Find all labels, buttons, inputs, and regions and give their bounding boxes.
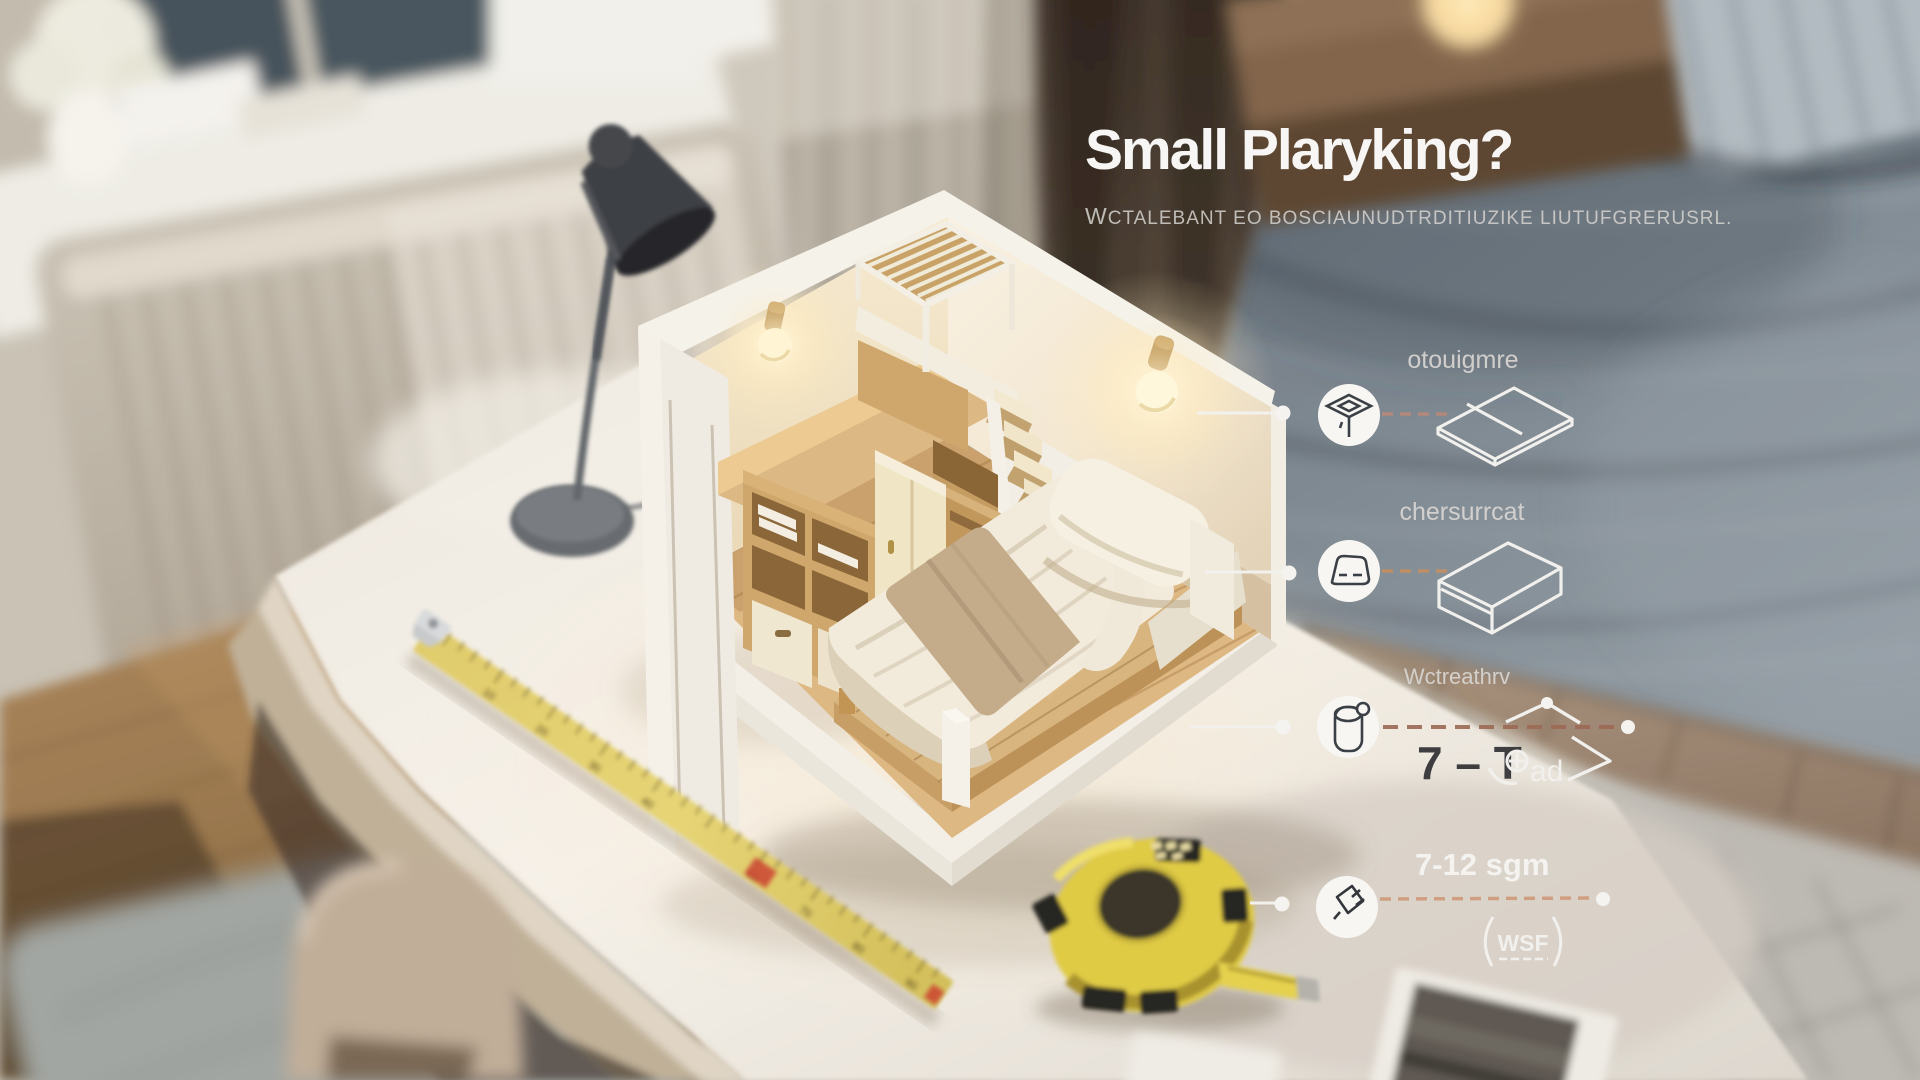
svg-text:ad: ad <box>1530 755 1563 788</box>
svg-text:chersurrcat: chersurrcat <box>1399 498 1524 526</box>
svg-text:WSF: WSF <box>1497 930 1548 956</box>
svg-text:Small Plaryking?: Small Plaryking? <box>1085 118 1512 182</box>
svg-text:otouigmre: otouigmre <box>1407 346 1518 374</box>
svg-text:Wctreathrv: Wctreathrv <box>1404 664 1510 689</box>
svg-text:7-12 sgm: 7-12 sgm <box>1415 847 1549 882</box>
